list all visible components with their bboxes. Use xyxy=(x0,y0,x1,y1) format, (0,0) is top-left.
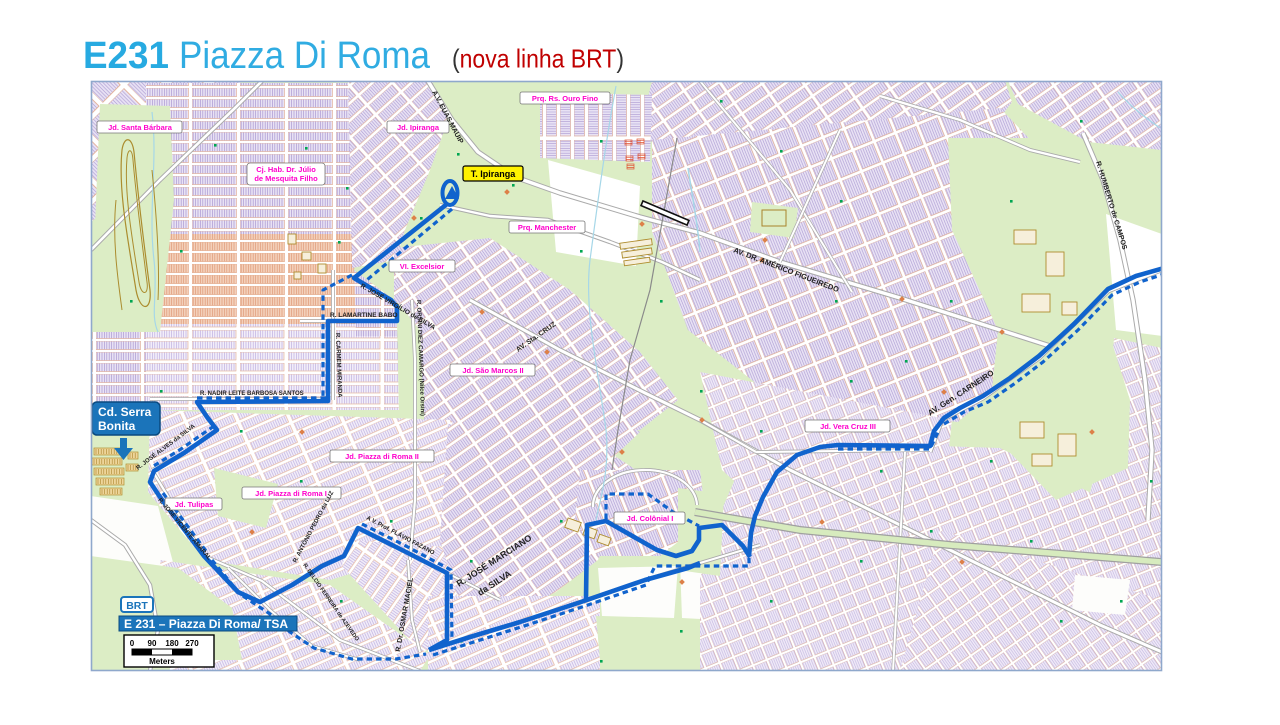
svg-text:Jd. Santa Bárbara: Jd. Santa Bárbara xyxy=(108,123,173,132)
svg-text:de Mesquita Filho: de Mesquita Filho xyxy=(254,174,318,183)
svg-text:E 231 – Piazza Di Roma/ TSA: E 231 – Piazza Di Roma/ TSA xyxy=(124,617,288,631)
svg-text:Jd. Vera Cruz III: Jd. Vera Cruz III xyxy=(820,422,876,431)
svg-text:Jd. Tulipas: Jd. Tulipas xyxy=(175,500,214,509)
svg-text:BRT: BRT xyxy=(126,600,148,612)
svg-text:R. NADIR LEITE BARBOSA SANTOS: R. NADIR LEITE BARBOSA SANTOS xyxy=(200,391,304,397)
svg-text:270: 270 xyxy=(185,639,199,648)
svg-text:VI. Excelsior: VI. Excelsior xyxy=(400,262,445,271)
svg-text:Jd. Piazza di Roma II: Jd. Piazza di Roma II xyxy=(345,452,419,461)
svg-text:Bonita: Bonita xyxy=(98,419,136,433)
svg-text:Cd. Serra: Cd. Serra xyxy=(98,405,152,419)
svg-text:Jd. Piazza di Roma I: Jd. Piazza di Roma I xyxy=(255,489,327,498)
svg-text:0: 0 xyxy=(130,639,135,648)
svg-text:T. Ipiranga: T. Ipiranga xyxy=(471,169,517,179)
svg-text:90: 90 xyxy=(148,639,157,648)
svg-text:Jd. Ipiranga: Jd. Ipiranga xyxy=(397,123,440,132)
svg-text:180: 180 xyxy=(165,639,179,648)
svg-text:Prq. Manchester: Prq. Manchester xyxy=(518,223,576,232)
svg-text:Jd. Colônial I: Jd. Colônial I xyxy=(627,514,674,523)
svg-text:Meters: Meters xyxy=(149,657,175,666)
svg-text:R. LAMARTINE BABO: R. LAMARTINE BABO xyxy=(330,312,398,319)
svg-text:Prq. Rs. Ouro Fino: Prq. Rs. Ouro Fino xyxy=(532,94,599,103)
svg-text:Cj. Hab. Dr. Júlio: Cj. Hab. Dr. Júlio xyxy=(256,165,316,174)
svg-text:Jd. São Marcos II: Jd. São Marcos II xyxy=(462,366,523,375)
